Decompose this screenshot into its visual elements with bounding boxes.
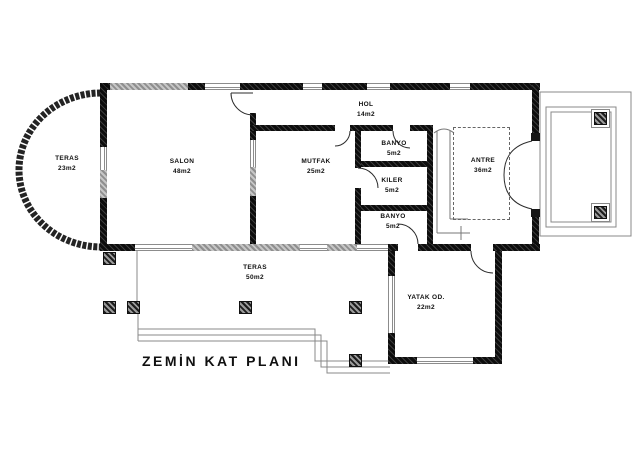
floor-plan-canvas: TERAS 23m2 SALON 48m2 MUTFAK 25m2 HOL 14…: [0, 0, 640, 451]
room-label-kiler: KILER 5m2: [381, 176, 402, 196]
right-terrace-outline: [540, 92, 631, 236]
room-name: HOL: [357, 100, 375, 110]
plan-title: ZEMİN KAT PLANI: [142, 353, 301, 369]
room-label-teras-sol: TERAS 23m2: [55, 154, 79, 174]
interior-opening: [250, 167, 256, 196]
window: [357, 244, 388, 251]
interior-opening: [250, 140, 256, 167]
kiler-door-arc: [358, 168, 378, 188]
window: [450, 83, 470, 90]
column-marker: [349, 354, 362, 367]
room-area: 14m2: [357, 110, 375, 120]
wall: [388, 357, 417, 364]
wall: [240, 83, 303, 90]
wall: [100, 244, 135, 251]
window: [303, 83, 322, 90]
room-label-antre: ANTRE 36m2: [471, 156, 495, 176]
wall: [250, 196, 256, 244]
room-name: SALON: [170, 157, 195, 167]
window: [367, 83, 390, 90]
window: [100, 170, 107, 198]
wall: [388, 244, 398, 251]
room-label-banyo-ust: BANYO 5m2: [381, 139, 406, 159]
wall: [532, 83, 539, 140]
wall: [322, 83, 367, 90]
room-area: 50m2: [243, 273, 267, 283]
window: [135, 244, 192, 251]
window: [110, 83, 188, 90]
wall: [361, 205, 427, 211]
room-area: 25m2: [301, 167, 330, 177]
window: [205, 83, 240, 90]
wall: [390, 83, 450, 90]
room-area: 5m2: [381, 186, 402, 196]
wall: [473, 357, 502, 364]
room-name: ANTRE: [471, 156, 495, 166]
window: [327, 244, 357, 251]
wall: [355, 188, 361, 244]
column-marker: [103, 252, 116, 265]
room-label-salon: SALON 48m2: [170, 157, 195, 177]
room-label-mutfak: MUTFAK 25m2: [301, 157, 330, 177]
column-marker: [239, 301, 252, 314]
door-jamb: [531, 209, 540, 217]
wall: [418, 244, 471, 251]
wall: [493, 244, 540, 251]
room-name: BANYO: [381, 139, 406, 149]
column-marker: [127, 301, 140, 314]
room-area: 48m2: [170, 167, 195, 177]
room-area: 5m2: [380, 222, 405, 232]
room-label-hol: HOL 14m2: [357, 100, 375, 120]
wall: [100, 83, 107, 147]
wall: [470, 83, 540, 90]
yatak-door-arc: [471, 251, 493, 273]
room-name: MUTFAK: [301, 157, 330, 167]
wall: [495, 251, 502, 357]
room-label-banyo-alt: BANYO 5m2: [380, 212, 405, 232]
window: [192, 244, 300, 251]
column-marker: [103, 301, 116, 314]
room-name: TERAS: [243, 263, 267, 273]
room-label-yatak-odasi: YATAK OD. 22m2: [407, 293, 444, 313]
room-area: 22m2: [407, 303, 444, 313]
room-name: YATAK OD.: [407, 293, 444, 303]
wall: [250, 125, 335, 131]
salon-door-arc: [231, 93, 253, 115]
room-name: TERAS: [55, 154, 79, 164]
wall: [427, 125, 433, 244]
room-name: KILER: [381, 176, 402, 186]
door-jamb: [531, 133, 540, 141]
window: [100, 147, 107, 170]
room-label-teras-alt: TERAS 50m2: [243, 263, 267, 283]
room-name: BANYO: [380, 212, 405, 222]
floorplan-linework: [0, 0, 640, 451]
room-area: 36m2: [471, 166, 495, 176]
wall: [188, 83, 205, 90]
room-area: 23m2: [55, 164, 79, 174]
window: [300, 244, 327, 251]
column-marker: [594, 206, 607, 219]
window: [388, 276, 395, 333]
wall: [388, 251, 395, 276]
mutfak-door-arc: [335, 131, 350, 146]
room-area: 5m2: [381, 149, 406, 159]
column-marker: [594, 112, 607, 125]
wall: [361, 161, 427, 167]
window: [417, 357, 473, 364]
column-marker: [349, 301, 362, 314]
